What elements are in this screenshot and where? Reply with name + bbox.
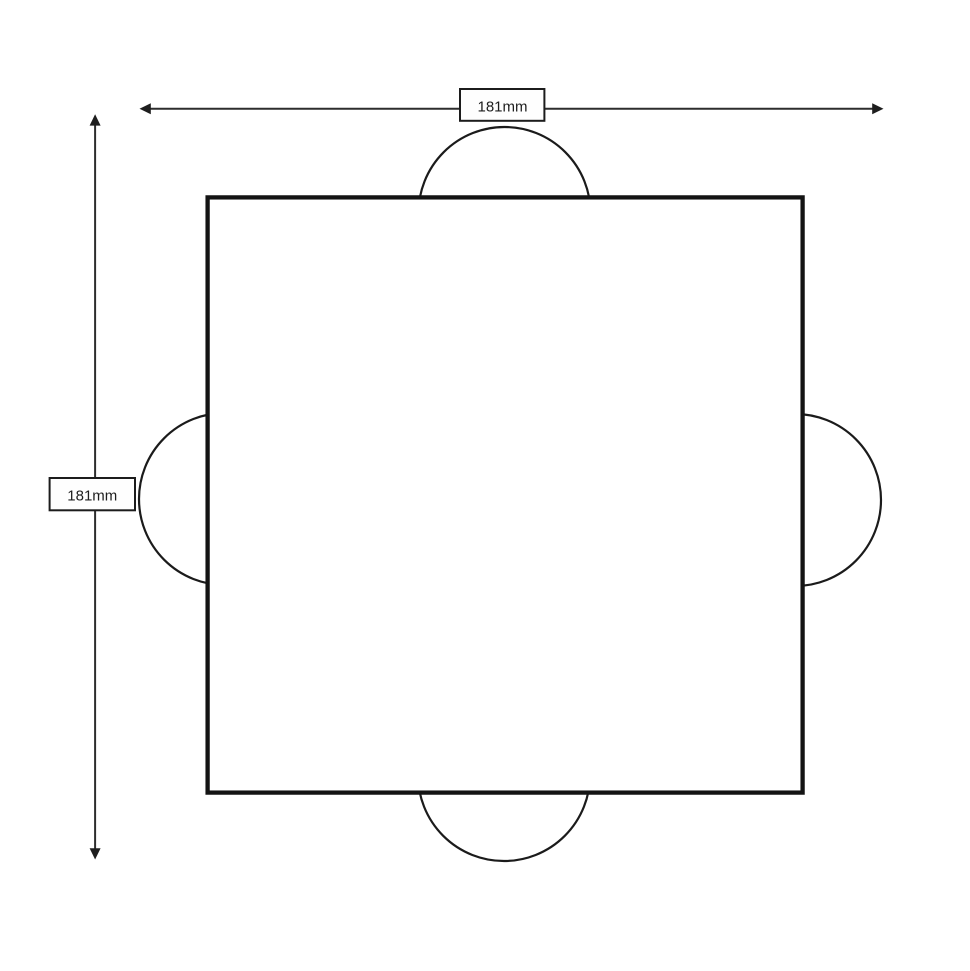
svg-text:181mm: 181mm [67, 488, 117, 505]
svg-text:181mm: 181mm [477, 98, 527, 115]
